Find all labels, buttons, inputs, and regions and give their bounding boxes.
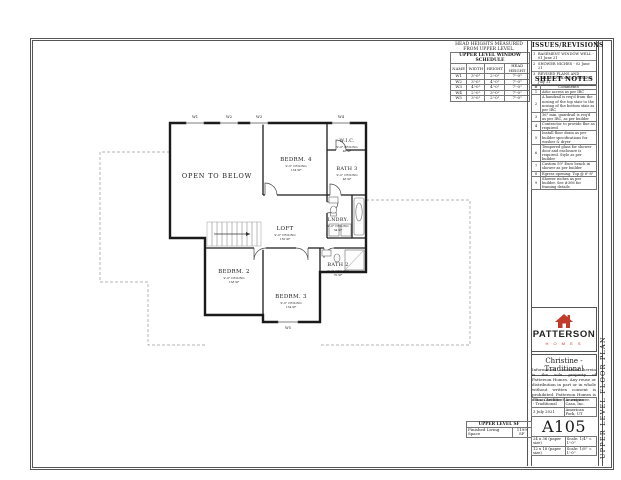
window-schedule-title: UPPER LEVEL WINDOW SCHEDULE bbox=[451, 53, 530, 64]
window-tag: W3 bbox=[256, 115, 263, 119]
stairs bbox=[207, 222, 261, 246]
table-row: 24 x 36 (paper size) Scale: 1/4" = 1'-0" bbox=[532, 437, 597, 447]
window-tag: W2 bbox=[226, 115, 232, 119]
room-label-loft: LOFT 9'-0" CEILING 150 SF bbox=[265, 215, 305, 241]
note-number: 7 bbox=[532, 162, 541, 171]
paper-size-cell: 12 x 18 (paper size) bbox=[532, 446, 566, 456]
floor-plan-sheet: { "schedule_note": "HEAD HEIGHTS MEASURE… bbox=[0, 0, 621, 480]
revisions-title: ISSUES/REVISIONS bbox=[532, 41, 596, 51]
room-name: W.I.C. bbox=[339, 139, 354, 144]
room-name: BEDRM. 4 bbox=[280, 157, 312, 163]
list-item: 1 BASEMENT WINDOW WELL - 01 June 21 bbox=[532, 51, 596, 61]
room-area: 46 SF bbox=[329, 150, 365, 153]
house-icon bbox=[553, 313, 575, 329]
window-schedule-table: UPPER LEVEL WINDOW SCHEDULE NAME WIDTH H… bbox=[450, 52, 530, 102]
room-label-bedrm2: BEDRM. 2 9'-0" CEILING 138 SF bbox=[209, 258, 259, 284]
note-text: 36" min. guardrail is req'd as per IRC, … bbox=[541, 112, 597, 121]
sheet-notes-table: # Comments 1Attic access as per IRC 2A h… bbox=[531, 84, 597, 190]
sheet-notes-panel: SHEET NOTES # Comments 1Attic access as … bbox=[531, 73, 597, 190]
cell-name: W5 bbox=[451, 96, 467, 102]
dashed-roof-outline-left bbox=[100, 152, 207, 345]
project-info-table: Plan: Christine - Traditional American C… bbox=[531, 397, 597, 417]
revision-text: SHOWER NICHES - 02 June 21 bbox=[538, 62, 595, 70]
table-row: 6Tempered glass for shower door and encl… bbox=[532, 144, 597, 162]
table-row: 3 July 2021 American Fork, UT bbox=[532, 407, 597, 417]
note-text: Contractor to provide flue as required bbox=[541, 122, 597, 131]
revision-text: BASEMENT WINDOW WELL - 01 June 21 bbox=[538, 52, 595, 60]
sf-summary-table: UPPER LEVEL SF Finished Living Space 119… bbox=[466, 421, 532, 438]
room-name: BEDRM. 3 bbox=[275, 294, 307, 300]
builder-cell: American Casa, Inc. bbox=[564, 398, 597, 408]
room-name: BATH 3 bbox=[336, 166, 357, 172]
paper-size-cell: 24 x 36 (paper size) bbox=[532, 437, 566, 447]
date-cell: 3 July 2021 bbox=[532, 407, 565, 417]
sf-value: 1199 SF bbox=[512, 427, 531, 437]
note-number: 2 bbox=[532, 95, 541, 113]
note-text: Tempered glass for shower door and enclo… bbox=[541, 144, 597, 162]
cell-height: 2'-0" bbox=[485, 96, 505, 102]
table-row: 336" min. guardrail is req'd as per IRC,… bbox=[532, 112, 597, 121]
scale-cell: Scale: 1/4" = 1'-0" bbox=[565, 437, 596, 447]
table-row: 9Shower niches as per builder. See #306 … bbox=[532, 176, 597, 189]
table-row: W5 3'-0" 2'-0" 7'-0" bbox=[451, 96, 530, 102]
table-row: 5Install floor drain as per builder spec… bbox=[532, 131, 597, 144]
location-cell: American Fork, UT bbox=[564, 407, 597, 417]
window-tag: W4 bbox=[338, 115, 345, 119]
sheet-number: A105 bbox=[531, 417, 597, 436]
room-label-lndry: LNDRY. 9'-0" CEILING 34 SF bbox=[322, 206, 354, 232]
list-item: 2 SHOWER NICHES - 02 June 21 bbox=[532, 61, 596, 71]
note-number: 3 bbox=[532, 112, 541, 121]
note-number: 4 bbox=[532, 122, 541, 131]
room-area: 134 SF bbox=[271, 169, 321, 172]
note-text: Egress opening. Top @ 6'-8" bbox=[541, 171, 597, 176]
room-area: 46 SF bbox=[328, 178, 366, 181]
room-area: 70 SF bbox=[318, 274, 358, 277]
paper-scale-table: 24 x 36 (paper size) Scale: 1/4" = 1'-0"… bbox=[531, 436, 597, 456]
room-name: BATH 2 bbox=[327, 262, 348, 268]
window-tag: W1 bbox=[192, 115, 198, 119]
sheet-title-vertical: UPPER LEVEL FLOOR PLAN bbox=[599, 330, 611, 466]
note-text: Install floor drain as per builder speci… bbox=[541, 131, 597, 144]
room-area: 150 SF bbox=[265, 238, 305, 241]
brand-subtitle: H O M E S bbox=[545, 341, 582, 346]
table-row: 7Custom 59" Euro bench in shower as per … bbox=[532, 162, 597, 171]
note-number: 9 bbox=[532, 176, 541, 189]
table-row: Plan: Christine - Traditional American C… bbox=[532, 398, 597, 408]
room-label-bedrm4: BEDRM. 4 9'-0" CEILING 134 SF bbox=[271, 146, 321, 172]
room-label-open-to-below: OPEN TO BELOW bbox=[176, 173, 258, 181]
room-area: 138 SF bbox=[209, 281, 259, 284]
note-text: A handrail is req'd from the nosing of t… bbox=[541, 95, 597, 113]
table-row: Finished Living Space 1199 SF bbox=[467, 427, 532, 437]
room-name: BEDRM. 2 bbox=[218, 269, 250, 275]
room-label-bedrm3: BEDRM. 3 9'-0" CEILING 134 SF bbox=[266, 283, 316, 309]
brand-name: PATTERSON bbox=[533, 329, 596, 340]
room-name: LNDRY. bbox=[328, 218, 349, 223]
note-number: 6 bbox=[532, 144, 541, 162]
room-label-wic: W.I.C. 9'-0" CEILING 46 SF bbox=[329, 127, 365, 153]
room-name: LOFT bbox=[277, 226, 294, 232]
table-row: 8Egress opening. Top @ 6'-8" bbox=[532, 171, 597, 176]
sheet-notes-title: SHEET NOTES bbox=[531, 73, 597, 84]
cell-width: 3'-0" bbox=[467, 96, 485, 102]
scale-cell: Scale: 1/8" = 1'-0" bbox=[565, 446, 596, 456]
room-area: 134 SF bbox=[266, 306, 316, 309]
room-label-bath2: BATH 2 9'-0" CEILING 70 SF bbox=[318, 251, 358, 277]
room-area: 34 SF bbox=[322, 229, 354, 232]
sf-label: Finished Living Space bbox=[467, 427, 513, 437]
window-tag: W5 bbox=[285, 326, 292, 330]
note-text: Shower niches as per builder. See #306 f… bbox=[541, 176, 597, 189]
table-row: 12 x 18 (paper size) Scale: 1/8" = 1'-0" bbox=[532, 446, 597, 456]
table-row: 2A handrail is req'd from the nosing of … bbox=[532, 95, 597, 113]
room-label-bath3: BATH 3 9'-0" CEILING 46 SF bbox=[328, 155, 366, 181]
plan-label-cell: Plan: Christine - Traditional bbox=[532, 398, 565, 408]
builder-logo: PATTERSON H O M E S bbox=[531, 307, 597, 352]
note-number: 5 bbox=[532, 131, 541, 144]
note-text: Custom 59" Euro bench in shower as per b… bbox=[541, 162, 597, 171]
cell-head-height: 7'-0" bbox=[505, 96, 530, 102]
table-row: 4Contractor to provide flue as required bbox=[532, 122, 597, 131]
